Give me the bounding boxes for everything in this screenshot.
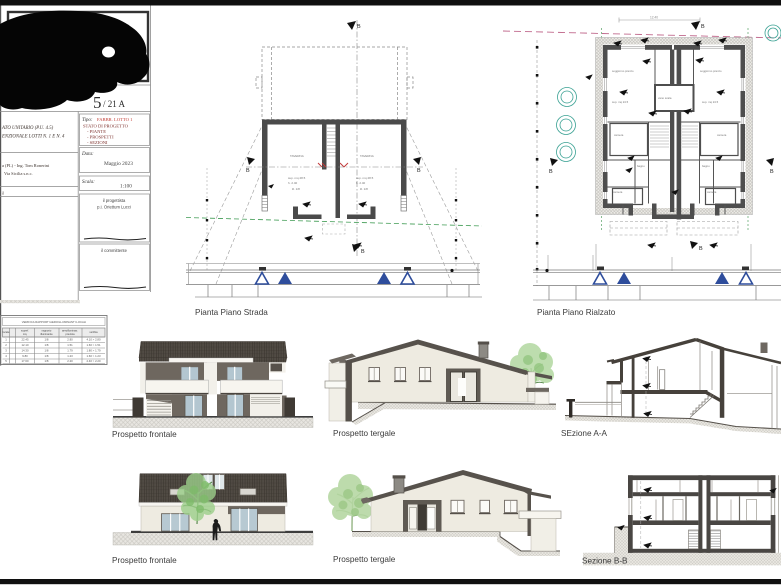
svg-text:il progettista: il progettista [103,198,126,203]
svg-text:5: 5 [93,93,102,112]
svg-text:sup. mq 24.5: sup. mq 24.5 [702,100,719,104]
svg-text:bagno: bagno [702,164,710,168]
svg-text:- SEZIONI: - SEZIONI [87,140,108,145]
svg-text:camera: camera [614,133,624,137]
svg-text:illuminante: illuminante [40,332,53,336]
svg-text:locale: locale [3,330,10,334]
svg-text:1/8: 1/8 [45,349,49,353]
svg-text:B: B [246,168,250,174]
svg-text:camera: camera [717,133,727,137]
svg-text:2.40 > 2.20: 2.40 > 2.20 [86,359,101,363]
svg-text:Prospetto frontale: Prospetto frontale [112,556,177,565]
svg-text:17.60: 17.60 [22,359,29,363]
svg-text:12.40: 12.40 [650,16,658,20]
svg-text:1/8: 1/8 [45,354,49,358]
svg-text:a (PL) - Ing. Tom Ronerini: a (PL) - Ing. Tom Ronerini [2,163,50,168]
svg-text:Prospetto tergale: Prospetto tergale [333,555,396,564]
svg-text:il committente: il committente [101,248,128,253]
svg-text:1.80 > 1.79: 1.80 > 1.79 [86,349,101,353]
svg-text:soggiorno pranzo: soggiorno pranzo [612,69,634,73]
svg-text:Pianta Piano Rialzato: Pianta Piano Rialzato [537,308,616,317]
svg-text:prevista: prevista [65,332,75,336]
svg-text:1/8: 1/8 [45,338,49,342]
svg-text:rapporto: rapporto [42,329,52,333]
svg-text:p.i. Oriettum Lucci: p.i. Oriettum Lucci [97,205,131,210]
svg-text:h. 2.40: h. 2.40 [288,181,298,185]
svg-text:VERIFICA RAPPORTI AEROILLUMINA: VERIFICA RAPPORTI AEROILLUMINANTI LOCALI [22,320,87,324]
svg-text:- PIANTE: - PIANTE [87,129,106,134]
svg-text:TAVERNA: TAVERNA [360,154,374,158]
svg-text:aeroilluminaz.: aeroilluminaz. [62,329,78,333]
svg-text:h. 2.40: h. 2.40 [356,181,366,185]
svg-text:Pianta Piano Strada: Pianta Piano Strada [195,308,268,317]
svg-text:sup. mq 28.5: sup. mq 28.5 [356,176,374,180]
svg-text:2.80: 2.80 [67,338,73,342]
svg-text:Tipo:: Tipo: [82,118,93,123]
svg-text:TAVERNA: TAVERNA [290,154,304,158]
svg-text:B: B [770,169,774,175]
svg-text:mq.: mq. [23,333,28,336]
svg-text:1.60 > 1.23: 1.60 > 1.23 [86,354,101,358]
svg-text:STATO DI PROGETTO: STATO DI PROGETTO [83,124,129,129]
svg-text:Scala:: Scala: [82,180,95,185]
svg-text:B: B [549,169,553,175]
svg-text:il: il [2,192,4,196]
svg-text:ATO UNITARIO (P.U. 4.5): ATO UNITARIO (P.U. 4.5) [1,126,54,131]
svg-text:22.45: 22.45 [22,338,29,342]
svg-text:12.10: 12.10 [22,343,29,347]
svg-text:1/8: 1/8 [45,343,49,347]
svg-text:B: B [357,24,361,30]
svg-text:superf.: superf. [21,329,29,333]
svg-text:ENZIONALE LOTTI N. 1 E N. 4: ENZIONALE LOTTI N. 1 E N. 4 [1,135,65,140]
svg-text:Via Sicilia s.n.c.: Via Sicilia s.n.c. [4,171,33,176]
svg-text:sup. mq 24.5: sup. mq 24.5 [612,100,629,104]
svg-text:1/8: 1/8 [45,359,49,363]
svg-text:ill. 1/8: ill. 1/8 [292,187,300,191]
svg-text:vano scala: vano scala [658,96,672,100]
svg-text:/ 21 A: / 21 A [103,99,126,109]
svg-text:Maggio 2023: Maggio 2023 [104,161,133,167]
svg-text:4.10 > 2.80: 4.10 > 2.80 [86,338,101,342]
svg-text:B: B [701,24,705,30]
svg-text:1:100: 1:100 [120,184,132,190]
svg-text:ill. 1/8: ill. 1/8 [360,187,368,191]
svg-text:14.30: 14.30 [22,349,29,353]
svg-text:camera: camera [707,190,717,194]
svg-text:2.20: 2.20 [67,359,73,363]
svg-text:B: B [361,249,365,255]
svg-text:Sezione B-B: Sezione B-B [582,557,628,566]
svg-text:bagno: bagno [637,164,645,168]
svg-text:9.80: 9.80 [22,354,28,358]
svg-text:verifica: verifica [89,330,98,334]
svg-text:camera: camera [613,190,623,194]
svg-text:sup. mq 28.5: sup. mq 28.5 [288,176,306,180]
svg-text:SEzione A-A: SEzione A-A [561,429,608,438]
svg-text:FABBR. LOTTO 1: FABBR. LOTTO 1 [97,117,133,122]
svg-text:1.51: 1.51 [67,343,73,347]
svg-text:Data:: Data: [81,152,94,157]
svg-text:B: B [699,246,703,252]
svg-text:1.79: 1.79 [67,349,73,353]
svg-text:1.23: 1.23 [67,354,73,358]
svg-text:Prospetto frontale: Prospetto frontale [112,430,177,439]
svg-text:- PROSPETTI: - PROSPETTI [87,135,114,140]
svg-text:B: B [417,168,421,174]
svg-text:1.60 > 1.51: 1.60 > 1.51 [86,343,101,347]
svg-text:Prospetto tergale: Prospetto tergale [333,429,396,438]
svg-text:soggiorno pranzo: soggiorno pranzo [700,69,722,73]
